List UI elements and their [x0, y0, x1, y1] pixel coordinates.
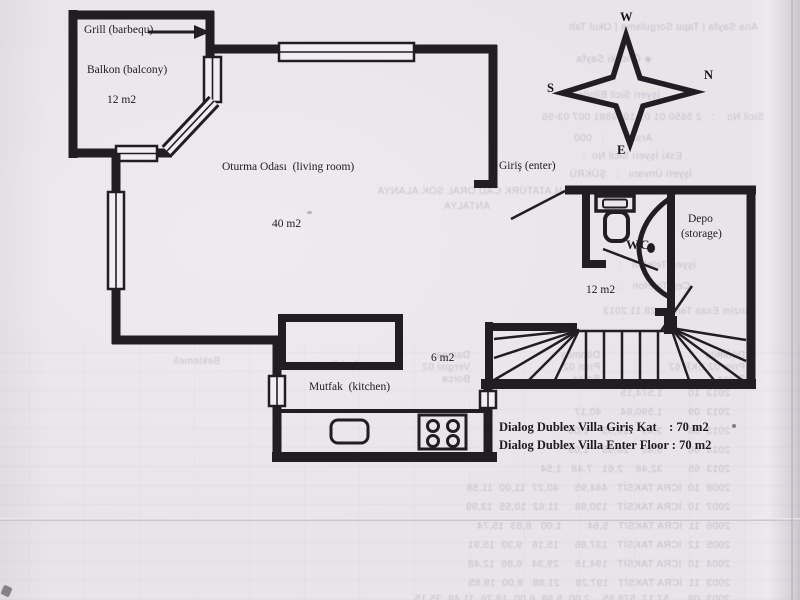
- stairs: [481, 316, 756, 386]
- plan-title-line2: Dialog Dublex Villa Enter Floor : 70 m2: [499, 439, 711, 453]
- floor-plan-drawing: [0, 0, 800, 600]
- living-room-area-label: 40 m2: [272, 218, 301, 231]
- balcony-area-label: 12 m2: [107, 94, 136, 107]
- storage-sublabel: (storage): [681, 228, 722, 241]
- entrance-label: Giriş (enter): [499, 160, 556, 173]
- storage-label: Depo: [688, 213, 713, 226]
- balcony-label: Balkon (balcony): [87, 64, 167, 77]
- hall-area-label: 12 m2: [586, 284, 615, 297]
- window-icon: [279, 43, 414, 61]
- window-icon: [116, 146, 157, 161]
- entrance-door-swing: [511, 191, 565, 219]
- window-icon: [108, 192, 124, 289]
- window-icon: [204, 57, 221, 102]
- sink-icon: [331, 420, 368, 443]
- compass-w-label: W: [620, 10, 633, 25]
- corridor-area-label: 6 m2: [431, 352, 454, 365]
- arrow-icon: [148, 25, 210, 39]
- window-icon: [269, 376, 285, 406]
- kitchen-label: Mutfak (kitchen): [309, 381, 390, 394]
- compass-e-label: E: [617, 143, 625, 158]
- grill-label: Grill (barbequ): [84, 24, 153, 37]
- stove-icon: [419, 415, 466, 449]
- living-room-label: Oturma Odası (living room): [222, 161, 354, 174]
- living-room-walls: [112, 45, 497, 344]
- plan-title-line1: Dialog Dublex Villa Giriş Kat : 70 m2: [499, 421, 709, 435]
- compass-s-label: S: [547, 81, 554, 96]
- toilet-icon: [596, 196, 634, 241]
- scanned-floor-plan-page: Ana Sayfa | Tapu Sorgulama | Okul Tah◈ Ö…: [0, 0, 800, 600]
- compass-n-label: N: [704, 68, 713, 83]
- window-icon: [167, 101, 214, 151]
- window-icon: [480, 391, 496, 408]
- compass-rose-icon: [562, 35, 695, 144]
- wc-label: WC: [626, 238, 650, 252]
